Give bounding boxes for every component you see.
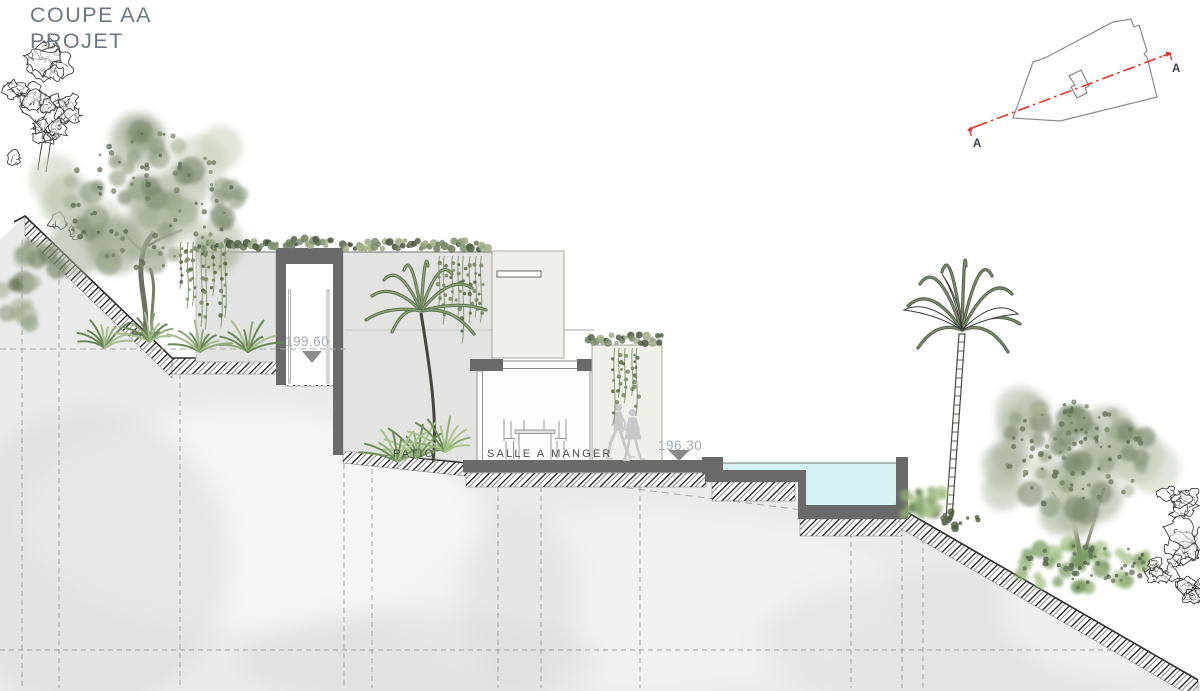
label-patio: PATIO	[393, 448, 435, 460]
tree-right-canopy	[982, 386, 1180, 537]
section-line-AA	[967, 52, 1172, 136]
title-line1: COUPE AA	[30, 3, 152, 27]
level-triangle-icon	[668, 450, 690, 461]
section-marker-a-right: A	[1172, 63, 1180, 75]
section-marker-a-left: A	[973, 138, 981, 150]
parcel-outline	[1013, 19, 1157, 121]
glass-mullion-left	[477, 371, 483, 461]
page-title: COUPE AA PROJET	[30, 3, 152, 53]
dining-roof-slab	[470, 359, 606, 371]
sketch-tree-right-edge	[1144, 486, 1200, 604]
site-plan-inset: A A	[967, 19, 1180, 150]
title-line2: PROJET	[30, 29, 124, 53]
right-volume	[592, 345, 662, 461]
label-dining: SALLE A MANGER	[487, 448, 613, 460]
slot-window	[497, 271, 541, 277]
elevation-value-upper: 199.60	[285, 334, 329, 349]
upper-volume	[492, 251, 564, 358]
section-drawing: 199.60 196.30 PATIO SALLE A MANGER COUPE…	[0, 0, 1200, 691]
elevation-marker-lower: 196.30	[658, 438, 702, 461]
terrace-slab	[463, 460, 723, 473]
building-footprint	[1069, 70, 1089, 98]
sketch-tree-top-left	[2, 38, 83, 172]
